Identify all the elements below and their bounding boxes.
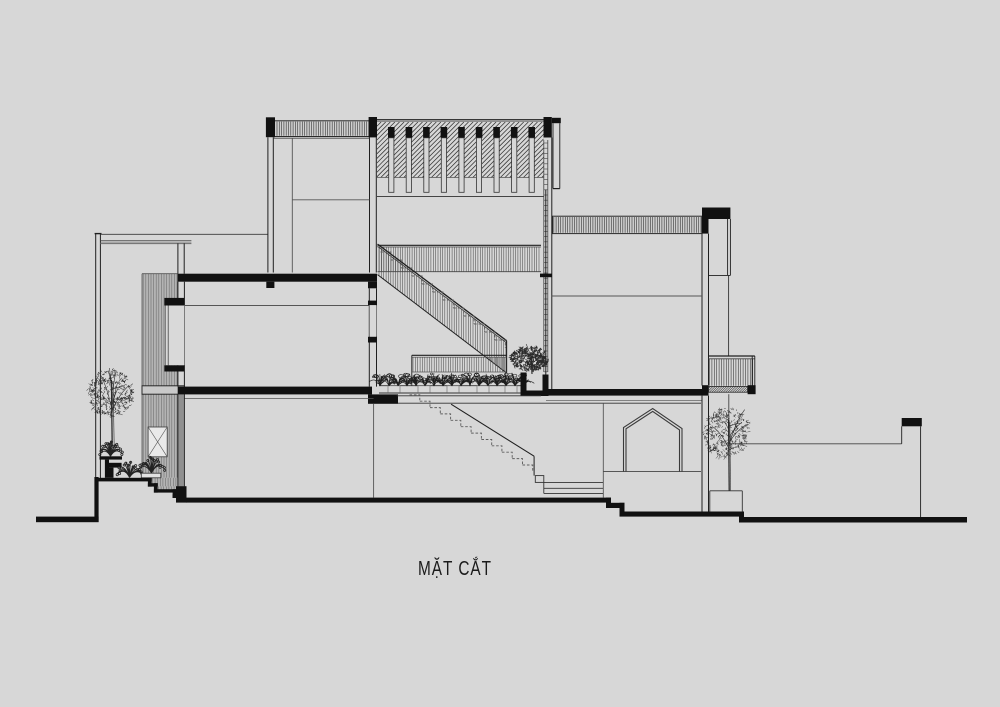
svg-text:MẶT CẮT: MẶT CẮT	[418, 556, 492, 580]
